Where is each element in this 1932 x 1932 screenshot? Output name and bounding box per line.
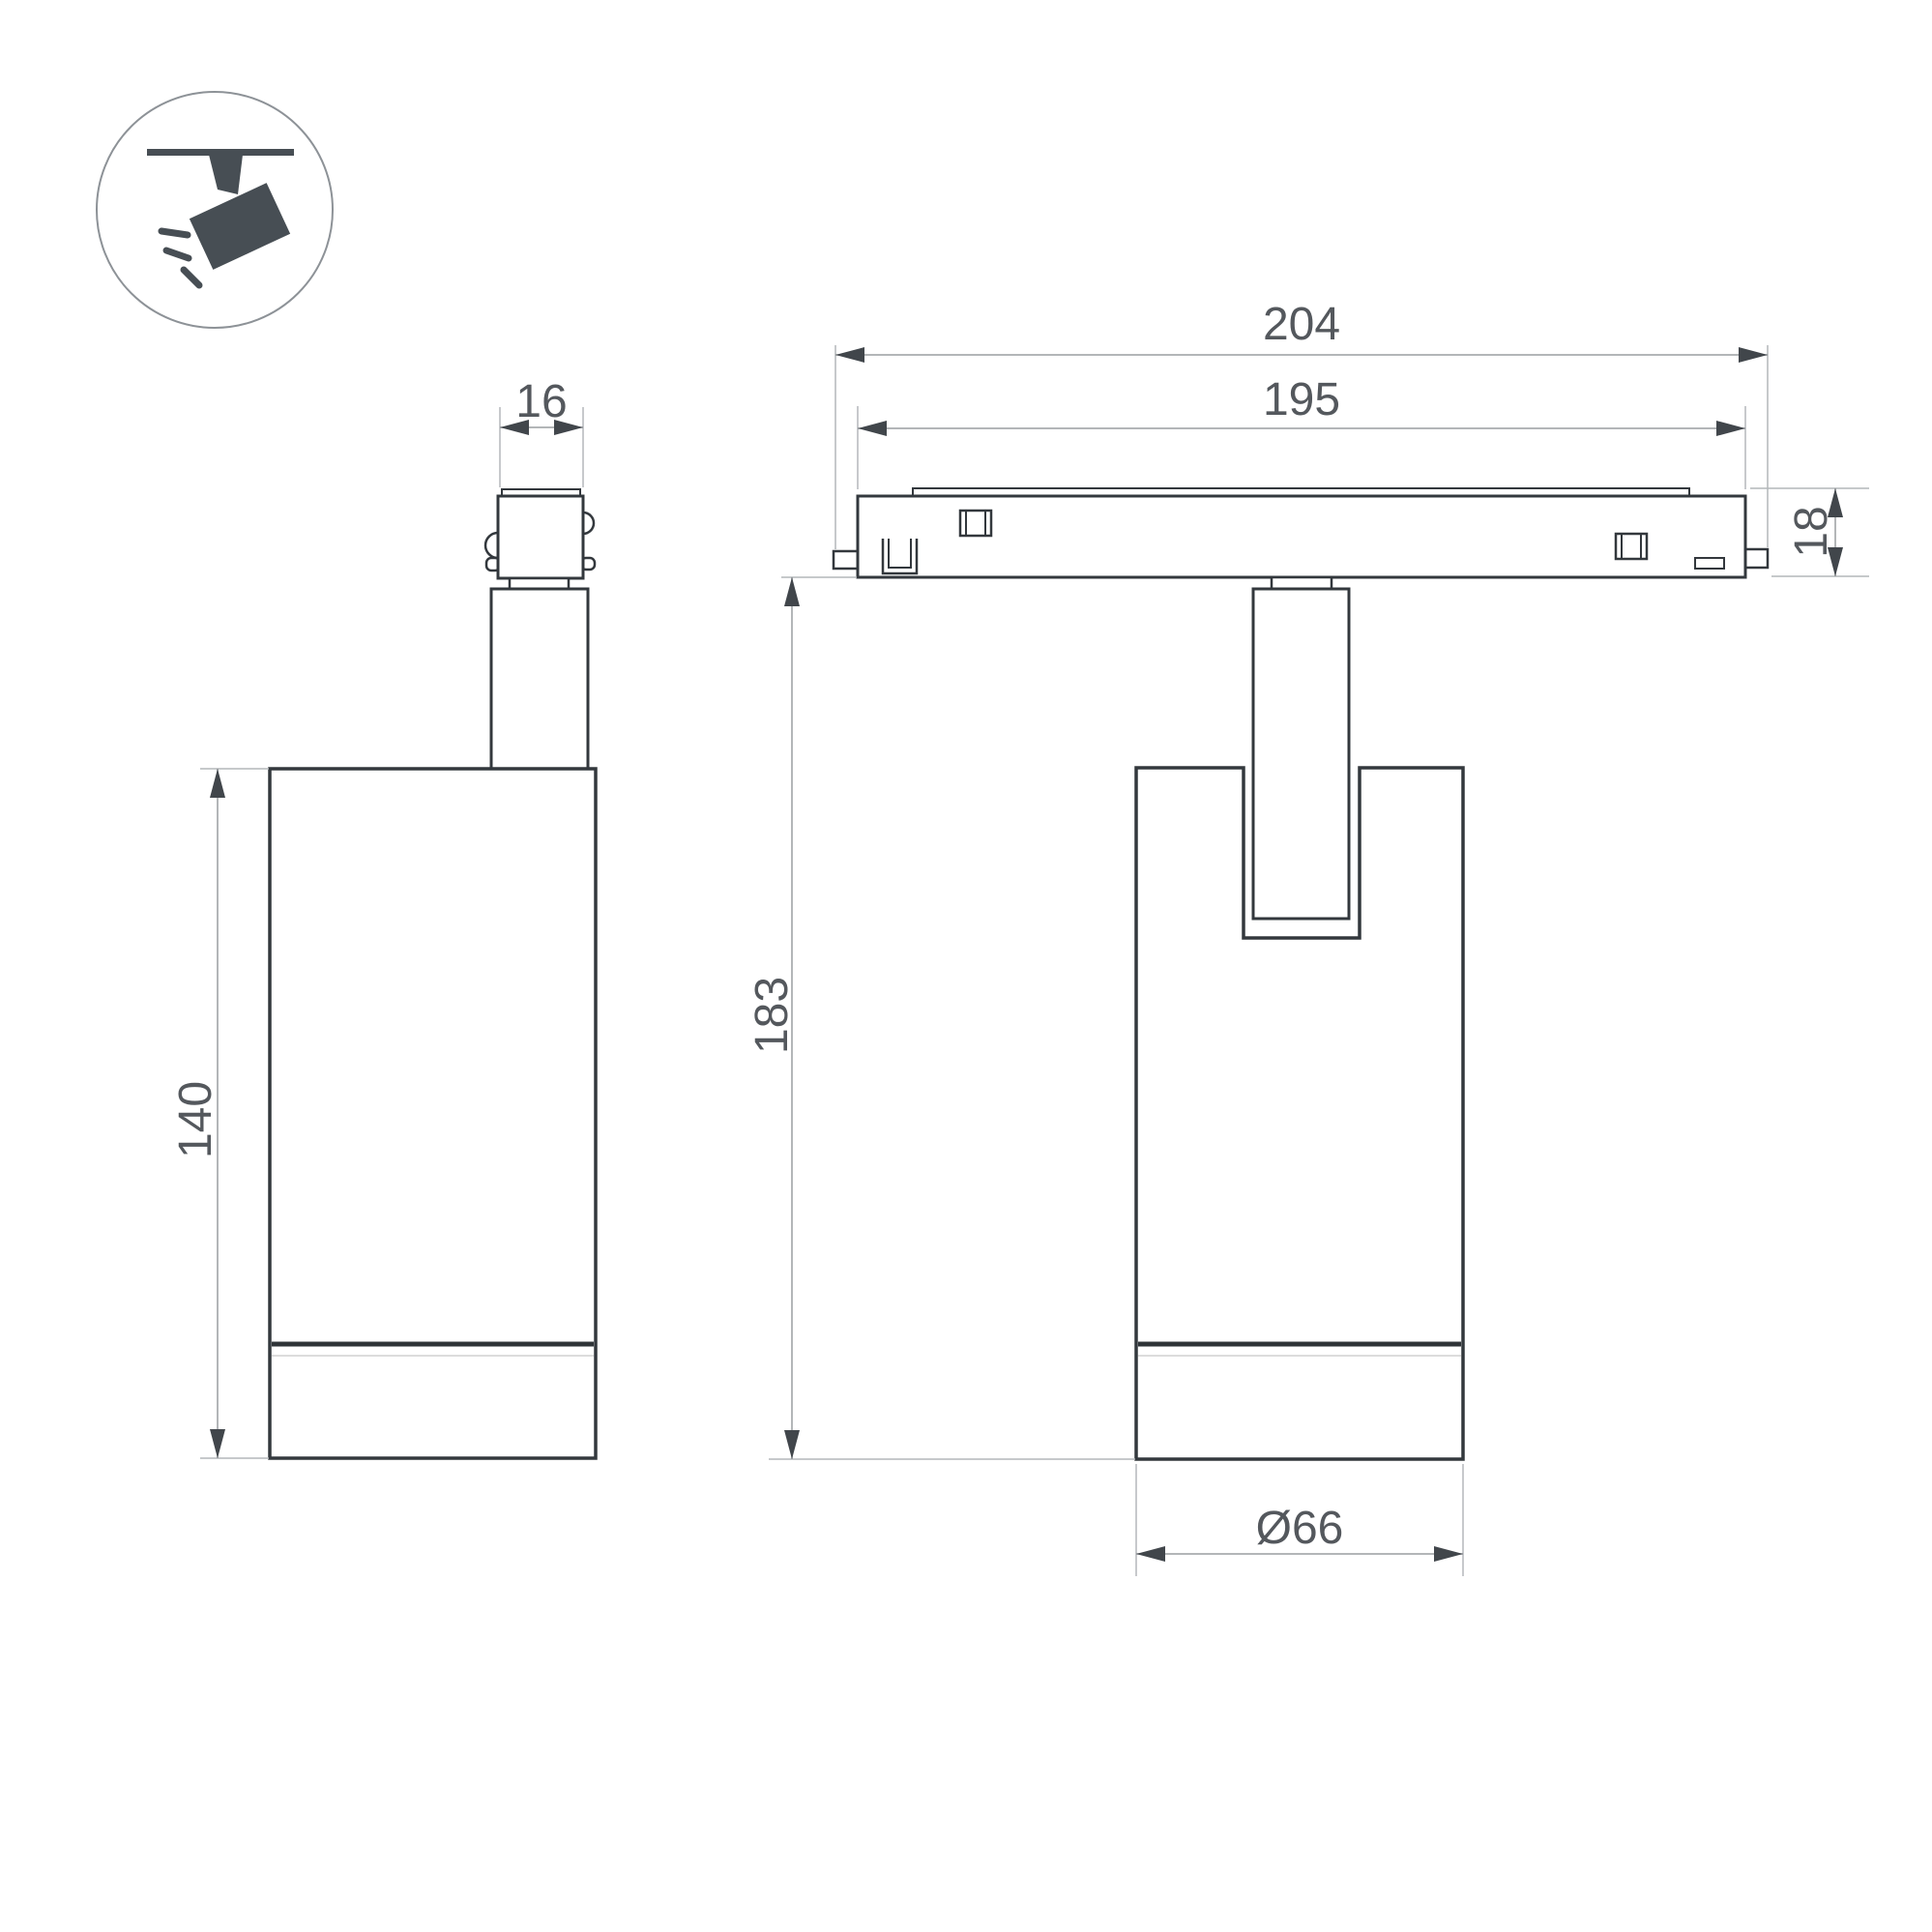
adapter-neck	[510, 578, 569, 589]
adapter-box	[498, 496, 583, 578]
icon-ceiling-line	[147, 149, 294, 156]
dim-label-16: 16	[515, 376, 567, 427]
dim-label-195: 195	[1263, 374, 1340, 425]
dimension-drawing: 16 140 204 195	[0, 0, 1932, 1932]
front-view-stem	[1253, 589, 1349, 919]
side-view-stem	[491, 589, 588, 769]
front-view-track	[834, 488, 1768, 577]
dim-label-66: Ø66	[1256, 1503, 1344, 1554]
track-contact-block-right	[1616, 534, 1647, 559]
track-slot-detail	[1695, 558, 1724, 569]
product-icon	[97, 92, 333, 328]
dim-label-140: 140	[170, 1081, 221, 1158]
dim-label-204: 204	[1263, 299, 1340, 350]
track-contact-block-left	[960, 511, 991, 536]
track-right-tab	[1745, 549, 1768, 568]
dim-label-18: 18	[1786, 506, 1837, 557]
dim-label-183: 183	[746, 977, 798, 1054]
track-left-tab	[834, 551, 858, 569]
front-view-stem-connector	[1272, 577, 1332, 589]
dimension-drawing-page: 16 140 204 195	[0, 0, 1932, 1932]
side-view-adapter	[485, 489, 595, 589]
